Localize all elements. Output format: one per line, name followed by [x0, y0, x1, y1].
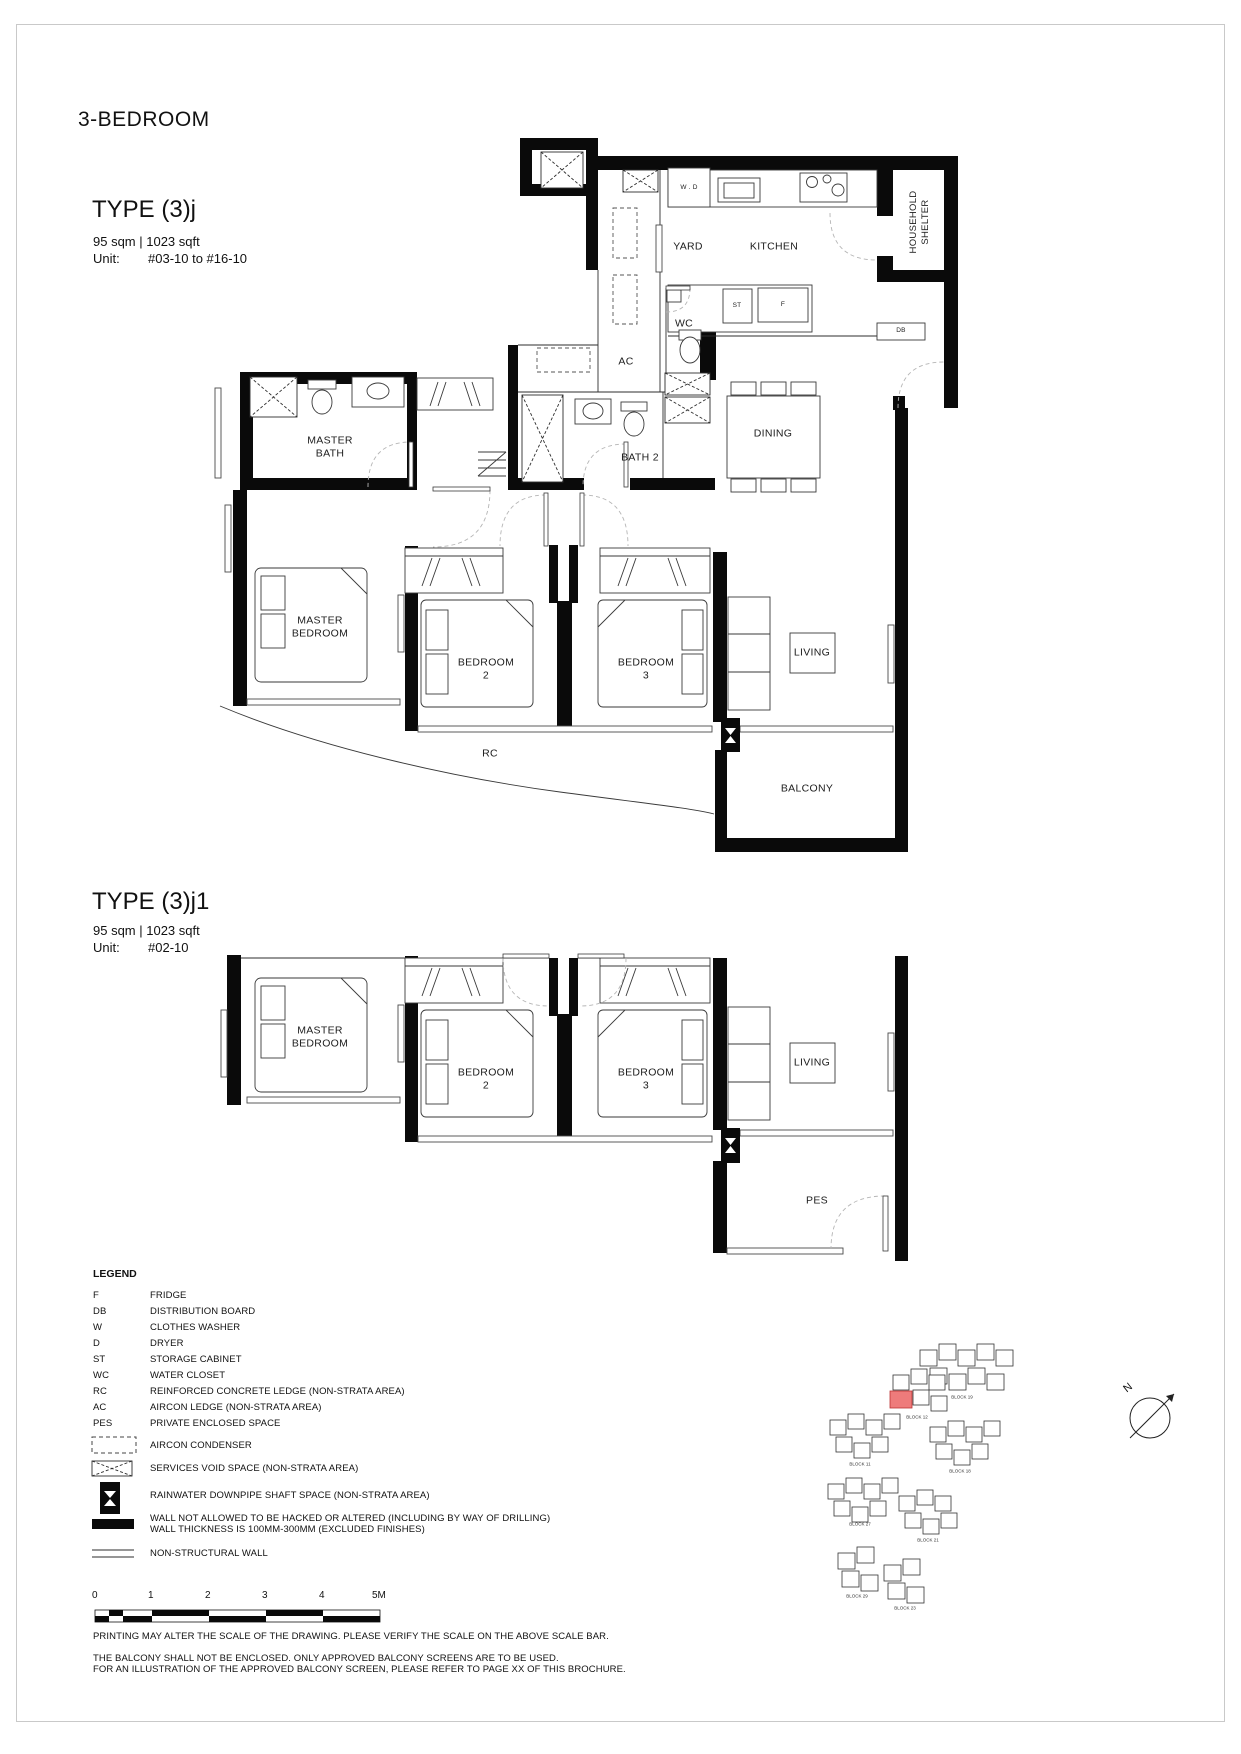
legend-desc: SERVICES VOID SPACE (NON-STRATA AREA): [150, 1463, 358, 1474]
legend-key: DB: [93, 1306, 106, 1317]
legend-desc: PRIVATE ENCLOSED SPACE: [150, 1418, 280, 1429]
legend-key: ST: [93, 1354, 105, 1365]
scale-tick: 5M: [372, 1590, 386, 1601]
block-29-outline: [838, 1547, 878, 1591]
block-label: BLOCK 23: [894, 1605, 916, 1610]
type2-unit-label: Unit:: [93, 940, 120, 955]
note-scale: PRINTING MAY ALTER THE SCALE OF THE DRAW…: [93, 1631, 609, 1642]
room-label-wc: WC: [675, 318, 693, 331]
legend-desc: DRYER: [150, 1338, 184, 1349]
legend-desc: FRIDGE: [150, 1290, 187, 1301]
room-label-master-bedroom: MASTER BEDROOM: [292, 614, 348, 639]
room-label-balcony: BALCONY: [781, 783, 833, 796]
appliance-label-wd: W . D: [680, 184, 697, 192]
legend-key: PES: [93, 1418, 112, 1429]
room-label-household-shelter: HOUSEHOLD SHELTER: [908, 191, 932, 254]
legend-desc: AIRCON LEDGE (NON-STRATA AREA): [150, 1402, 322, 1413]
type1-unit-label: Unit:: [93, 251, 120, 266]
appliance-label-st: ST: [733, 302, 742, 310]
legend-key: W: [93, 1322, 102, 1333]
type1-area: 95 sqm | 1023 sqft: [93, 234, 200, 249]
room-label-ac: AC: [618, 356, 633, 369]
rainwater-downpipe-icon: [100, 1482, 120, 1514]
scale-tick: 1: [148, 1590, 154, 1601]
sofa-icon: [728, 1007, 770, 1120]
block-label: BLOCK 12: [906, 1414, 928, 1419]
scale-tick: 3: [262, 1590, 268, 1601]
legend-key: AC: [93, 1402, 106, 1413]
services-void-icon: [92, 1461, 132, 1476]
room-label-bedroom3: BEDROOM 3: [618, 656, 674, 681]
room-label-pes: PES: [806, 1195, 828, 1208]
room-label-bedroom3-2: BEDROOM 3: [618, 1066, 674, 1091]
north-compass-icon: [1130, 1394, 1174, 1438]
legend-desc: STORAGE CABINET: [150, 1354, 242, 1365]
legend-desc: CLOTHES WASHER: [150, 1322, 240, 1333]
room-label-living: LIVING: [794, 647, 830, 660]
room-label-yard: YARD: [673, 241, 703, 254]
block-27-outline: [828, 1478, 898, 1522]
scale-tick: 4: [319, 1590, 325, 1601]
aircon-condenser-icon: [92, 1437, 136, 1453]
block-11-outline: [830, 1414, 900, 1458]
type3j-plan: [215, 138, 958, 852]
type1-unit-value: #03-10 to #16-10: [148, 251, 247, 266]
legend-desc: WALL NOT ALLOWED TO BE HACKED OR ALTERED…: [150, 1513, 550, 1535]
type3j1-plan: [221, 954, 908, 1261]
room-label-living-2: LIVING: [794, 1057, 830, 1070]
non-structural-wall-icon: [92, 1550, 134, 1557]
room-label-bedroom2-2: BEDROOM 2: [458, 1066, 514, 1091]
room-label-dining: DINING: [754, 428, 793, 441]
type1-title: TYPE (3)j: [92, 196, 196, 224]
note-balcony-1: THE BALCONY SHALL NOT BE ENCLOSED. ONLY …: [93, 1653, 559, 1664]
block-label: BLOCK 21: [917, 1537, 939, 1542]
block-label: BLOCK 19: [951, 1394, 973, 1399]
legend-desc: DISTRIBUTION BOARD: [150, 1306, 255, 1317]
structural-walls: [233, 138, 958, 852]
block-18-outline: [930, 1421, 1000, 1465]
room-label-rc: RC: [482, 748, 498, 761]
legend-desc: RAINWATER DOWNPIPE SHAFT SPACE (NON-STRA…: [150, 1490, 430, 1501]
block-12-outline: [890, 1369, 947, 1411]
legend-desc: NON-STRUCTURAL WALL: [150, 1548, 268, 1559]
scale-tick: 0: [92, 1590, 98, 1601]
block-label: BLOCK 18: [949, 1468, 971, 1473]
page-title: 3-BEDROOM: [78, 108, 210, 132]
legend-key: F: [93, 1290, 99, 1301]
block-21-outline: [899, 1490, 957, 1534]
room-label-bedroom2: BEDROOM 2: [458, 656, 514, 681]
rainwater-downpipe-icon: [721, 1128, 740, 1163]
legend-key: RC: [93, 1386, 107, 1397]
block-label: BLOCK 27: [849, 1521, 871, 1526]
sofa-icon: [728, 597, 770, 710]
room-label-bath2: BATH 2: [621, 452, 659, 465]
type2-title: TYPE (3)j1: [92, 888, 209, 916]
block-23-outline: [884, 1559, 924, 1603]
appliance-label-fridge: F: [781, 301, 785, 309]
block-label: BLOCK 29: [846, 1593, 868, 1598]
structural-wall-icon: [92, 1519, 134, 1529]
site-plan: [828, 1344, 1174, 1603]
legend-key: D: [93, 1338, 100, 1349]
room-label-kitchen: KITCHEN: [750, 241, 798, 254]
type2-area: 95 sqm | 1023 sqft: [93, 923, 200, 938]
room-label-master-bath: MASTER BATH: [307, 434, 353, 459]
rainwater-downpipe-icon: [721, 718, 740, 752]
appliance-label-db: DB: [896, 327, 905, 335]
scale-tick: 2: [205, 1590, 211, 1601]
legend-title: LEGEND: [93, 1268, 137, 1280]
legend-symbols: [92, 1437, 136, 1557]
note-balcony-2: FOR AN ILLUSTRATION OF THE APPROVED BALC…: [93, 1664, 626, 1675]
scale-bar: [95, 1610, 380, 1622]
type2-unit-value: #02-10: [148, 940, 188, 955]
floorplan-brochure-page: 3-BEDROOM TYPE (3)j 95 sqm | 1023 sqft U…: [0, 0, 1241, 1754]
legend-desc: REINFORCED CONCRETE LEDGE (NON-STRATA AR…: [150, 1386, 405, 1397]
block-label: BLOCK 11: [849, 1461, 870, 1466]
legend-desc: AIRCON CONDENSER: [150, 1440, 252, 1451]
legend-desc: WATER CLOSET: [150, 1370, 225, 1381]
highlighted-unit: [890, 1391, 912, 1408]
legend-key: WC: [93, 1370, 109, 1381]
room-label-master-bedroom-2: MASTER BEDROOM: [292, 1024, 348, 1049]
